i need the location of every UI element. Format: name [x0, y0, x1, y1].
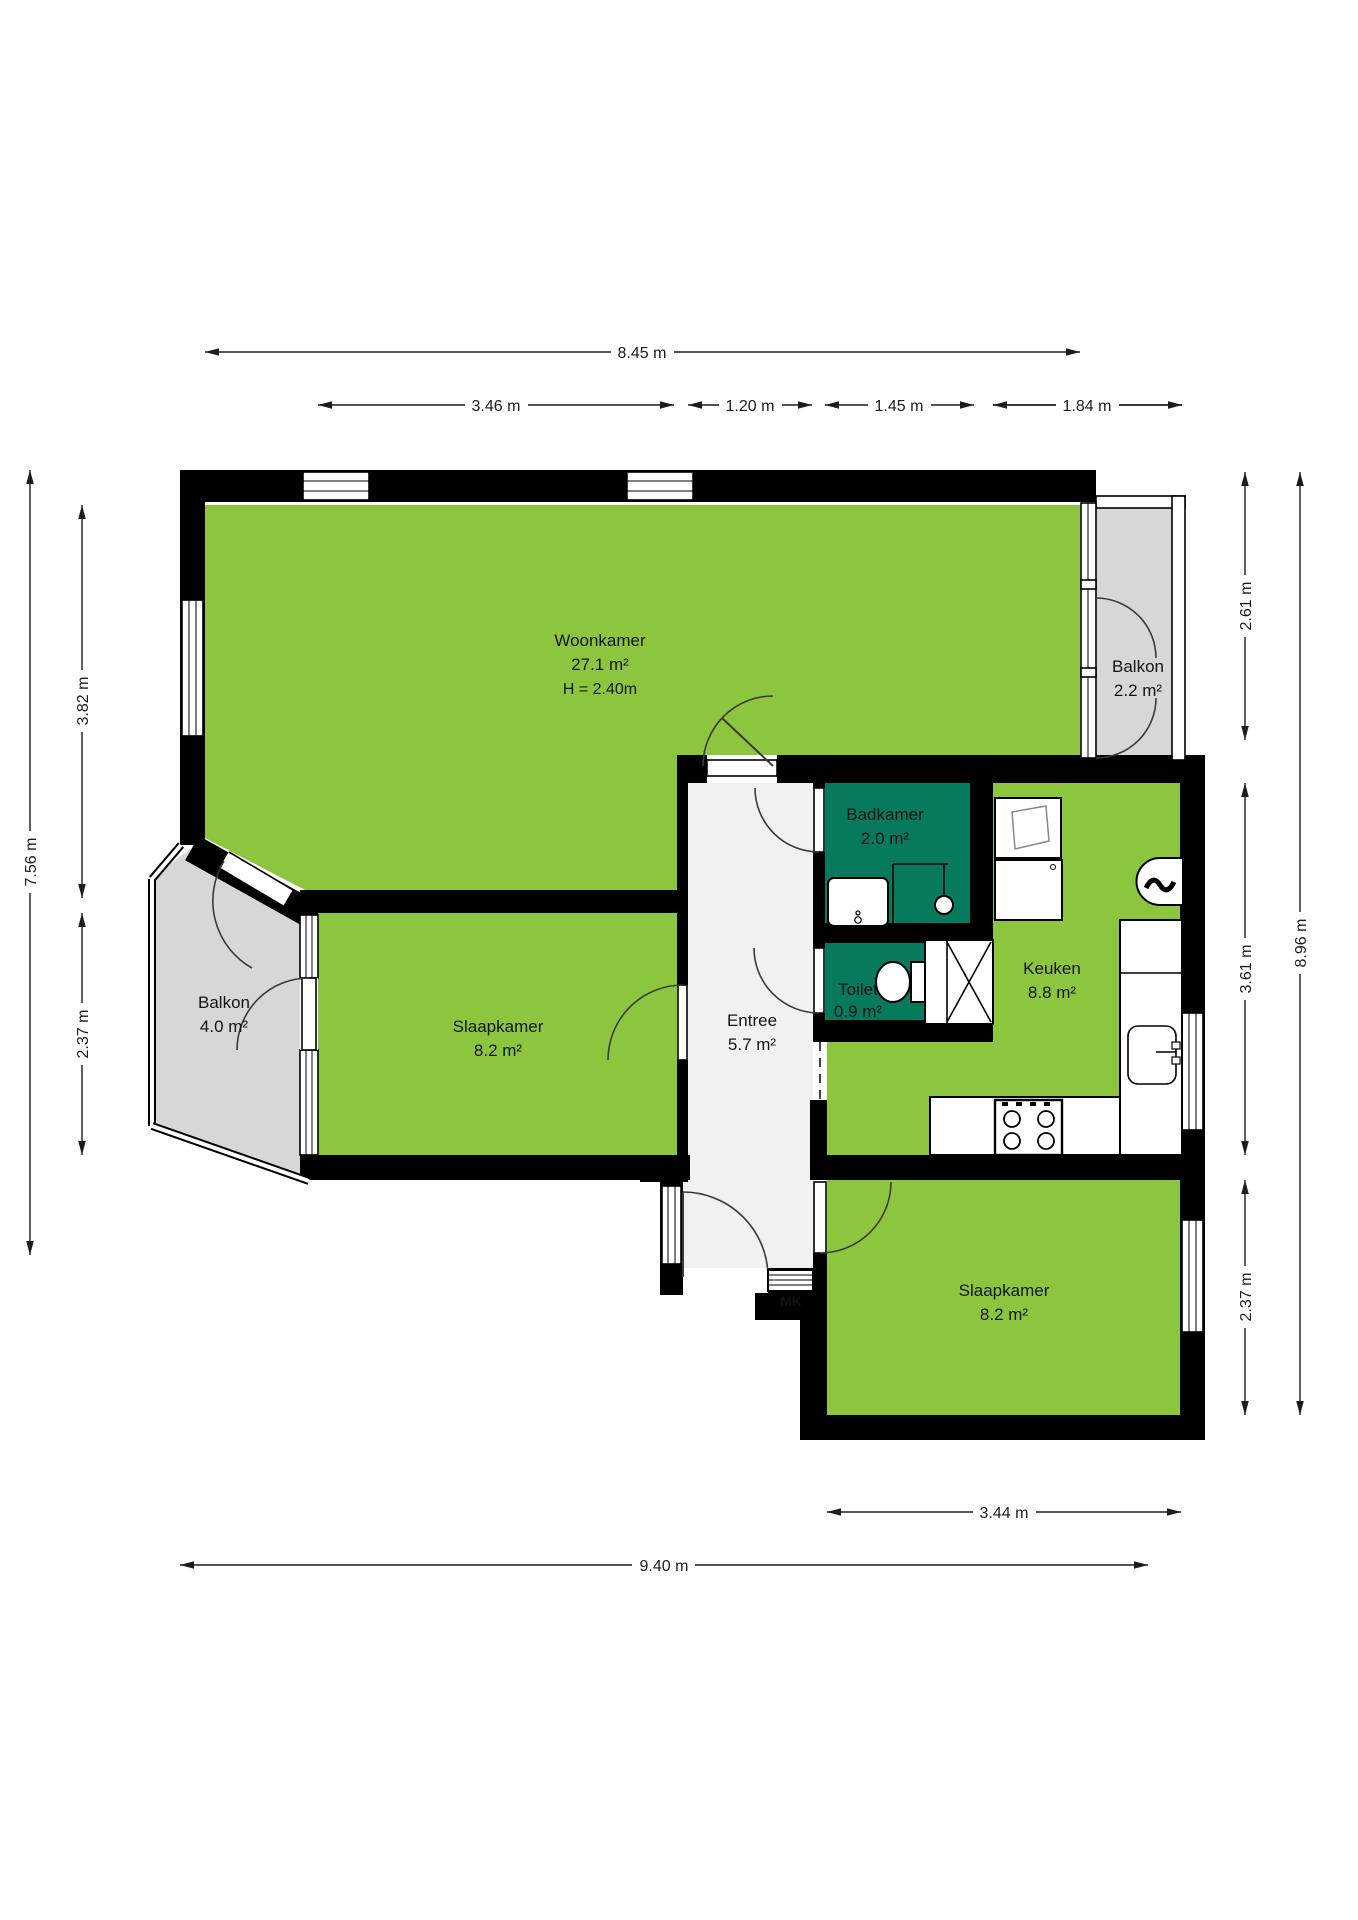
svg-text:Woonkamer: Woonkamer [554, 631, 646, 650]
window-balkon-door-glass [1081, 503, 1096, 758]
wall-bottom-left [300, 1155, 690, 1180]
window-bay-lower [300, 1050, 318, 1155]
svg-text:0.9 m²: 0.9 m² [834, 1002, 883, 1021]
svg-text:2.61 m: 2.61 m [1238, 582, 1255, 631]
fridge-icon [995, 798, 1061, 858]
svg-text:7.56 m: 7.56 m [23, 838, 40, 887]
bathroom-sink-icon [828, 878, 888, 926]
svg-text:8.2 m²: 8.2 m² [980, 1305, 1029, 1324]
window-bay-upper [300, 915, 318, 978]
floorplan-page: MK Woonkamer 27.1 m² H = 2.40m Balkon 2.… [0, 0, 1358, 1920]
wall-badkamer-right [970, 755, 993, 945]
svg-text:3.61 m: 3.61 m [1238, 945, 1255, 994]
railing-balkon-right [1172, 496, 1185, 760]
svg-text:2.0 m²: 2.0 m² [861, 829, 910, 848]
svg-text:2.37 m: 2.37 m [1238, 1273, 1255, 1322]
window-top-2 [627, 472, 693, 500]
window-keuken-right [1182, 1013, 1203, 1130]
wall-bottom [800, 1415, 1205, 1440]
svg-text:3.46 m: 3.46 m [472, 398, 521, 415]
dim-right-seg-2: 3.61 m [1236, 783, 1255, 1155]
window-slaapkamer-bottom-right [1182, 1220, 1203, 1332]
svg-text:8.8 m²: 8.8 m² [1028, 983, 1077, 1002]
svg-text:1.84 m: 1.84 m [1063, 398, 1112, 415]
toilet-icon [876, 962, 927, 1002]
window-top-1 [303, 472, 369, 500]
dim-right-seg-1: 2.61 m [1236, 472, 1255, 740]
svg-text:4.0 m²: 4.0 m² [200, 1017, 249, 1036]
svg-text:2.37 m: 2.37 m [75, 1010, 92, 1059]
wall-woonkamer-slaapkamer [300, 890, 688, 913]
svg-text:8.96 m: 8.96 m [1293, 919, 1310, 968]
kitchen-counter-right [1120, 920, 1182, 1155]
svg-text:8.45 m: 8.45 m [618, 345, 667, 362]
dim-top-seg-1: 3.46 m [318, 396, 674, 415]
stove-icon [995, 1100, 1062, 1155]
svg-text:Entree: Entree [727, 1011, 777, 1030]
room-entree [688, 783, 813, 1155]
dim-left-seg-2: 2.37 m [73, 913, 92, 1155]
room-entree-lower [683, 1155, 813, 1268]
shaft-box [925, 940, 993, 1024]
svg-text:Balkon: Balkon [1112, 657, 1164, 676]
dim-bottom-total: 9.40 m [180, 1556, 1148, 1575]
svg-text:1.20 m: 1.20 m [726, 398, 775, 415]
dim-top-seg-3: 1.45 m [825, 396, 974, 415]
dim-right-total: 8.96 m [1291, 472, 1310, 1415]
svg-text:8.2 m²: 8.2 m² [474, 1041, 523, 1060]
svg-text:Slaapkamer: Slaapkamer [959, 1281, 1050, 1300]
svg-text:1.45 m: 1.45 m [875, 398, 924, 415]
svg-text:3.82 m: 3.82 m [75, 677, 92, 726]
room-balkon-top [1085, 500, 1180, 758]
dim-top-seg-4: 1.84 m [993, 396, 1182, 415]
window-entree-left [662, 1186, 681, 1264]
meter-cupboard-label: MK [780, 1293, 802, 1309]
dim-right-seg-3: 2.37 m [1236, 1180, 1255, 1415]
svg-text:Toilet: Toilet [838, 980, 878, 999]
svg-text:9.40 m: 9.40 m [640, 1558, 689, 1575]
dim-top-total: 8.45 m [205, 343, 1080, 362]
svg-text:Slaapkamer: Slaapkamer [453, 1017, 544, 1036]
passage-entree-keuken [813, 1042, 827, 1100]
dim-bottom-seg-1: 3.44 m [827, 1503, 1181, 1522]
appliance-icon [995, 860, 1062, 920]
svg-text:Keuken: Keuken [1023, 959, 1081, 978]
dim-left-seg-1: 3.82 m [73, 505, 92, 898]
wall-corridor-left [677, 783, 688, 1155]
window-left [182, 600, 203, 736]
svg-text:Badkamer: Badkamer [846, 805, 924, 824]
boiler-icon [1137, 858, 1184, 905]
svg-text:5.7 m²: 5.7 m² [728, 1035, 777, 1054]
wall-keuken-bottom [827, 1155, 1205, 1180]
wall-entree-corner [640, 1155, 688, 1182]
svg-text:Balkon: Balkon [198, 993, 250, 1012]
dim-top-seg-2: 1.20 m [688, 396, 812, 415]
svg-text:2.2 m²: 2.2 m² [1114, 681, 1163, 700]
floorplan-canvas: MK Woonkamer 27.1 m² H = 2.40m Balkon 2.… [0, 0, 1358, 1920]
svg-text:3.44 m: 3.44 m [980, 1505, 1029, 1522]
svg-text:27.1 m²: 27.1 m² [571, 655, 629, 674]
svg-text:H = 2.40m: H = 2.40m [563, 681, 637, 698]
wall-corridor-right-lower [810, 1100, 827, 1180]
dim-left-total: 7.56 m [21, 470, 40, 1255]
